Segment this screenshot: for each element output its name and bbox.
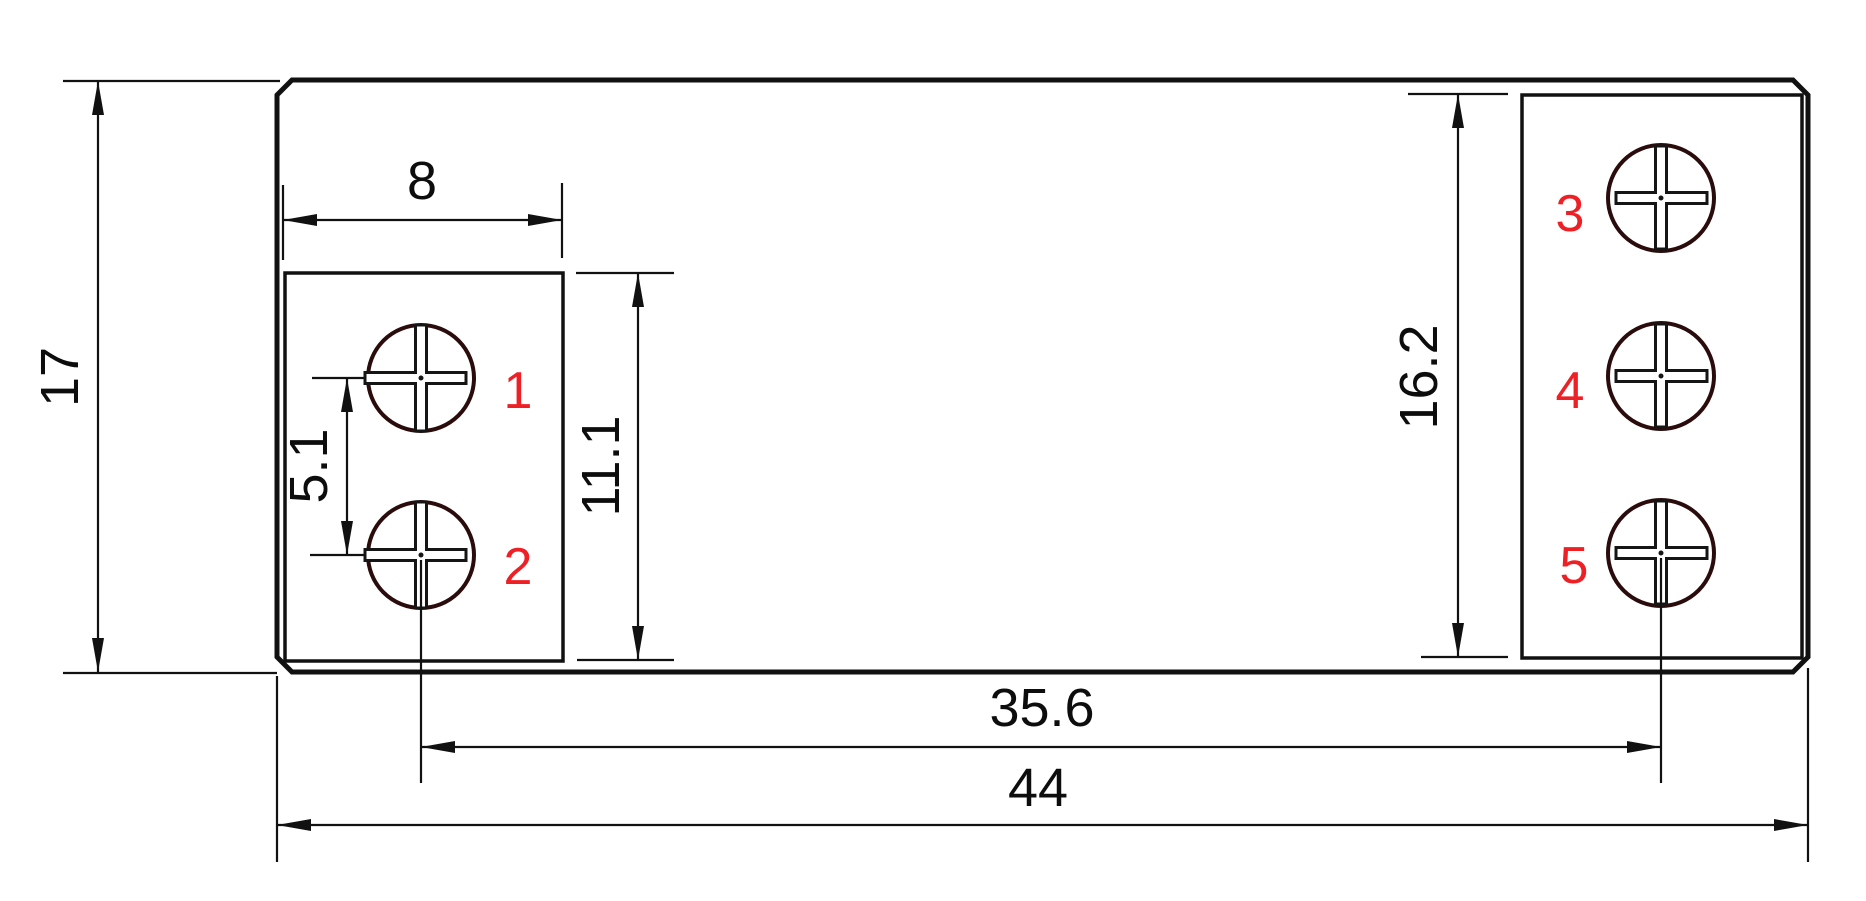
dim-value-left-block-width: 8 <box>407 154 437 208</box>
center-dot <box>419 376 424 381</box>
arrowhead-down-icon <box>92 638 104 672</box>
dim-value-left-block-height: 11.1 <box>574 415 628 516</box>
arrowhead-left-icon <box>277 819 311 831</box>
technical-drawing-canvas: 17 8 5.1 11.1 16.2 35.6 44 1 2 3 4 5 <box>0 0 1866 901</box>
terminal-label-2: 2 <box>504 541 533 593</box>
screw-terminal-4 <box>1608 323 1714 429</box>
dim-value-right-block-height: 16.2 <box>1392 324 1446 429</box>
dimension-overall-height <box>63 81 280 673</box>
terminal-label-4: 4 <box>1556 365 1585 417</box>
screw-terminal-1 <box>365 325 474 431</box>
screw-terminal-2 <box>365 502 474 608</box>
center-dot <box>1659 196 1664 201</box>
screw-terminal-3 <box>1608 145 1714 251</box>
center-dot <box>1659 551 1664 556</box>
center-dot <box>419 553 424 558</box>
terminal-label-5: 5 <box>1560 540 1589 592</box>
dim-value-overall-width: 44 <box>1008 761 1068 815</box>
terminal-label-1: 1 <box>504 365 533 417</box>
dim-value-overall-height: 17 <box>33 347 87 407</box>
arrowhead-right-icon <box>1627 741 1661 753</box>
dim-value-terminal-span: 35.6 <box>989 681 1094 735</box>
dim-value-terminal-pitch: 5.1 <box>282 428 336 503</box>
arrowhead-up-icon <box>92 81 104 115</box>
arrowhead-left-icon <box>421 741 455 753</box>
center-dot <box>1659 374 1664 379</box>
arrowhead-right-icon <box>1774 819 1808 831</box>
terminal-label-3: 3 <box>1556 188 1585 240</box>
